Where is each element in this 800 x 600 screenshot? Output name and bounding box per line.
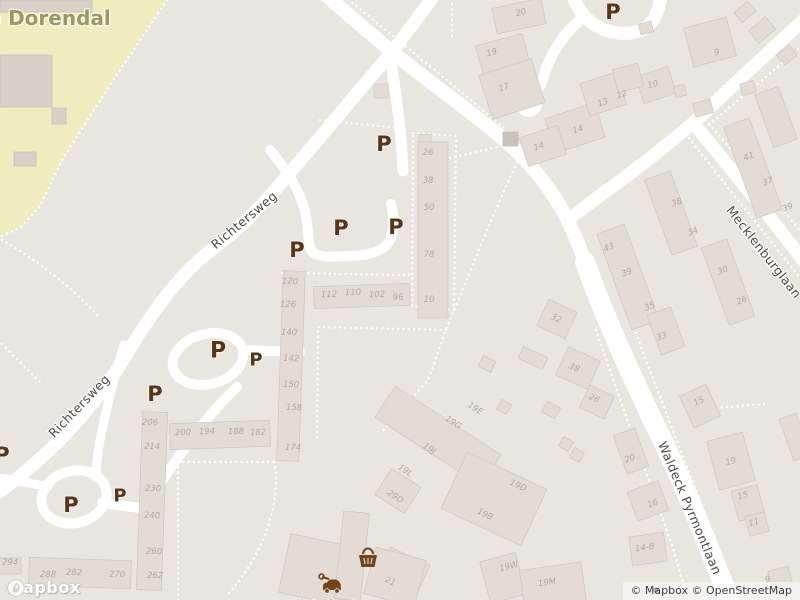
house-number-label: 50 (424, 203, 435, 213)
parking-icon: P (63, 493, 78, 517)
house-number-label: 112 (321, 290, 338, 301)
mapbox-logo[interactable]: mapbox (6, 578, 81, 597)
parking-icon: P (0, 443, 10, 467)
parking-icon: P (376, 132, 391, 156)
house-number-label: 270 (109, 570, 126, 581)
house-number-label: 200 (175, 428, 192, 439)
parking-icon: P (605, 0, 620, 24)
house-number-label: 262 (147, 571, 164, 582)
house-number-label: 26 (423, 148, 434, 158)
house-number-label: 120 (282, 277, 299, 288)
parking-icon: P (249, 350, 262, 371)
house-number-label: 282 (66, 568, 83, 579)
house-number-label: 230 (145, 484, 162, 495)
house-number-label: 142 (283, 354, 300, 365)
house-number-label: 96 (392, 293, 404, 303)
house-number-label: 182 (250, 428, 267, 439)
house-number-label: 150 (283, 380, 300, 391)
house-number-label: 140 (281, 328, 298, 339)
mapbox-logo-icon (6, 578, 26, 598)
house-number-label: 188 (228, 427, 245, 438)
map-render: 2019171312109141441373938344339353330263… (0, 0, 800, 600)
parking-icon: P (289, 238, 304, 262)
parking-icon: P (333, 216, 348, 240)
house-number-label: 102 (369, 290, 386, 301)
house-number-label: 10 (424, 295, 435, 305)
parking-icon: P (388, 215, 403, 239)
dark-building (503, 132, 518, 146)
house-number-label: 206 (142, 418, 159, 429)
place-label-layer: de Dorendal (0, 6, 111, 30)
house-number-label: 260 (146, 547, 163, 558)
house-number-label: 78 (424, 250, 435, 260)
place-label: de Dorendal (0, 6, 111, 30)
house-number-label: 194 (199, 427, 216, 438)
house-number-label: 214 (144, 442, 161, 453)
house-number-label: 174 (285, 443, 302, 454)
house-number-label: 294 (2, 558, 19, 569)
house-number-label: 240 (144, 511, 161, 522)
parking-icon: P (147, 382, 162, 406)
parking-icon: P (113, 486, 126, 507)
house-number-label: 110 (345, 288, 362, 299)
attribution-link[interactable]: © Mapbox © OpenStreetMap (623, 582, 800, 600)
house-number-label: 158 (286, 403, 303, 414)
house-number-label: 38 (423, 176, 434, 186)
map-canvas[interactable]: 2019171312109141441373938344339353330263… (0, 0, 800, 600)
house-number-label: 126 (280, 300, 297, 311)
parking-icon: P (210, 339, 226, 364)
